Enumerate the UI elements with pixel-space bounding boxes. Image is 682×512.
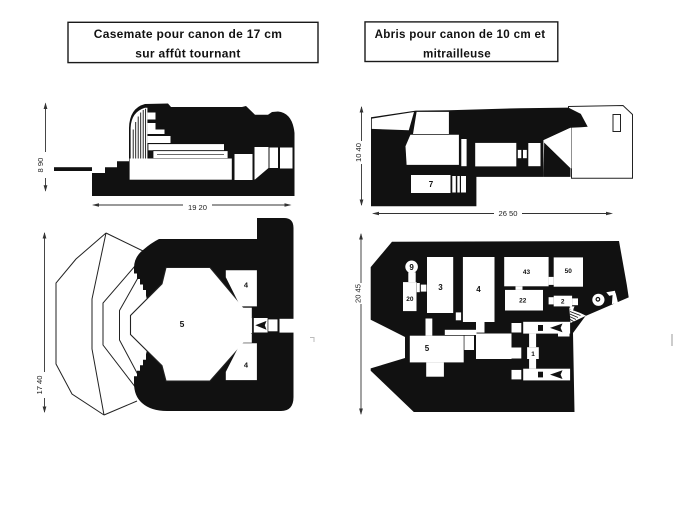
svg-text:mitrailleuse: mitrailleuse <box>423 48 491 61</box>
svg-text:5: 5 <box>425 344 430 353</box>
svg-text:20: 20 <box>406 296 414 303</box>
svg-text:2: 2 <box>561 299 565 306</box>
svg-text:3: 3 <box>438 283 443 292</box>
svg-text:19 20: 19 20 <box>188 203 207 212</box>
svg-text:20 45: 20 45 <box>354 284 363 303</box>
svg-text:4: 4 <box>476 285 481 294</box>
svg-text:sur affût tournant: sur affût tournant <box>135 47 240 61</box>
svg-text:50: 50 <box>565 268 573 275</box>
svg-text:1: 1 <box>531 351 535 358</box>
svg-text:Casemate pour canon de 17 cm: Casemate pour canon de 17 cm <box>94 27 282 41</box>
svg-text:43: 43 <box>523 269 531 276</box>
svg-text:9: 9 <box>409 263 414 272</box>
svg-text:22: 22 <box>519 298 527 305</box>
svg-text:26 50: 26 50 <box>498 209 517 218</box>
svg-text:5: 5 <box>180 319 185 329</box>
svg-text:Abris pour canon de 10 cm et: Abris pour canon de 10 cm et <box>375 28 546 41</box>
svg-text:17 40: 17 40 <box>35 375 44 394</box>
svg-text:8 90: 8 90 <box>36 158 45 173</box>
svg-text:10 40: 10 40 <box>354 143 363 162</box>
svg-text:7: 7 <box>429 180 434 189</box>
